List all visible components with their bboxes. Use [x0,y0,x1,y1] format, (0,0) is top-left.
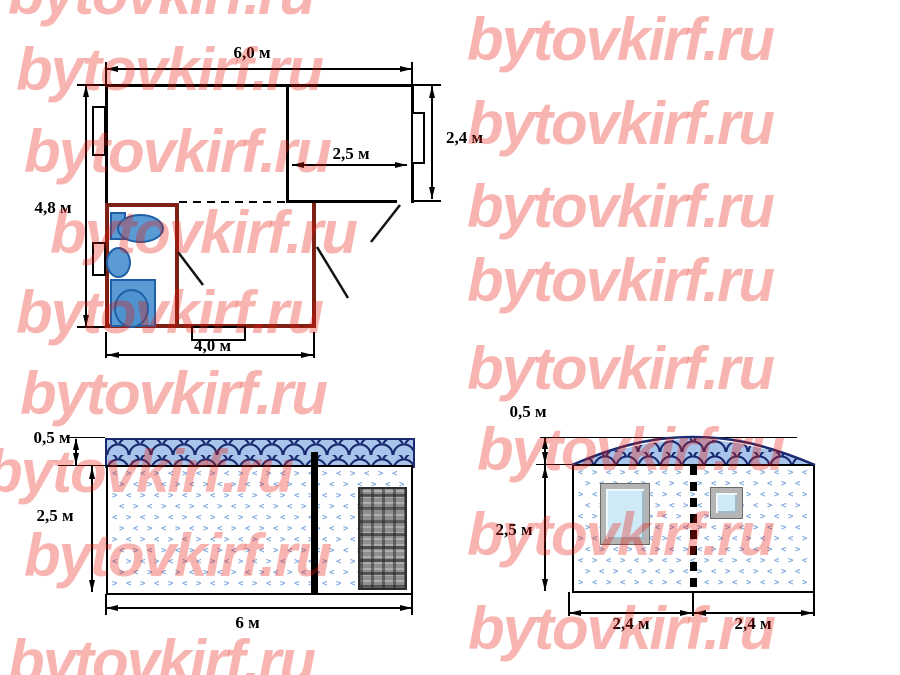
side-roof-outline [572,437,815,465]
blueprint-canvas: 6,0 м 4,8 м 2,5 м 2,4 м 4,0 м <><><><><>… [0,0,900,675]
right-room-door-swing [371,205,400,242]
stroke-overlay [0,0,900,675]
main-room-door-swing [317,247,348,298]
bathroom-door-swing [178,252,203,285]
